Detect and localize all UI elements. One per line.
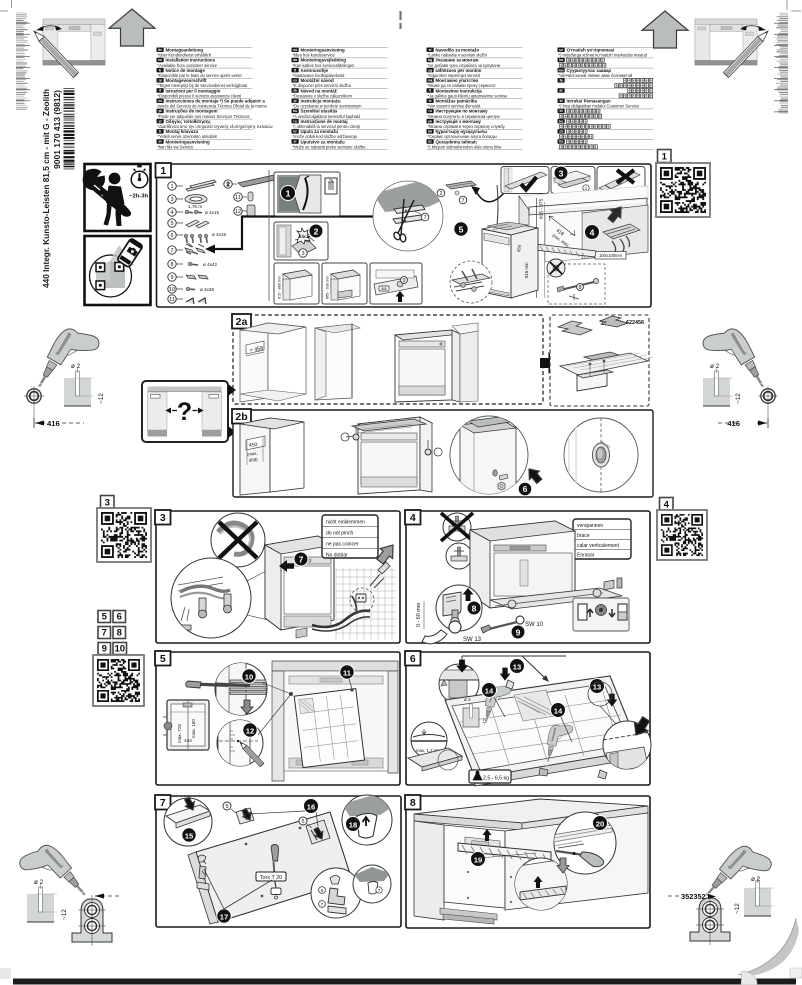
svg-text:bg: bg [428, 58, 432, 62]
svg-text:7: 7 [299, 554, 304, 564]
svg-text:7: 7 [423, 215, 426, 221]
svg-text:0 - 60 mm: 0 - 60 mm [416, 602, 422, 627]
svg-text:815 - 875: 815 - 875 [539, 198, 545, 219]
svg-text:10: 10 [169, 287, 175, 293]
svg-text:nicht einklemmen: nicht einklemmen [326, 520, 365, 526]
svg-text:1: 1 [662, 152, 668, 163]
svg-text:No doblar: No doblar [326, 553, 348, 559]
svg-text:3: 3 [559, 168, 564, 178]
svg-text:17: 17 [220, 912, 228, 921]
svg-text:11: 11 [343, 668, 352, 677]
svg-text:416: 416 [47, 419, 60, 428]
svg-text:ka: ka [559, 58, 563, 62]
svg-text:sv: sv [158, 140, 162, 144]
svg-text:888: 888 [381, 287, 387, 291]
svg-text:verspannen: verspannen [577, 523, 603, 529]
svg-text:11: 11 [169, 297, 175, 303]
svg-text:sq: sq [428, 68, 432, 72]
svg-text:440 Integr. Kunsto-Leisten 81,: 440 Integr. Kunsto-Leisten 81,5 cm - mit… [42, 89, 51, 288]
svg-text:2,5 - 6,5 kg: 2,5 - 6,5 kg [483, 776, 509, 782]
svg-text:hu: hu [293, 109, 297, 113]
svg-text:sk: sk [293, 89, 297, 93]
svg-text:5: 5 [160, 653, 166, 665]
svg-text:7: 7 [461, 198, 464, 204]
svg-text:444: 444 [184, 738, 192, 743]
svg-text:6: 6 [170, 233, 173, 239]
svg-text:8: 8 [117, 628, 122, 639]
svg-text:10: 10 [114, 644, 125, 655]
svg-text:SW 13: SW 13 [463, 637, 482, 643]
svg-text:fi: fi [294, 68, 296, 72]
svg-text:ø 2: ø 2 [34, 879, 44, 886]
svg-text:14: 14 [485, 687, 494, 696]
svg-text:2a: 2a [236, 316, 248, 328]
svg-text:~12: ~12 [61, 909, 68, 920]
svg-text:kk: kk [428, 130, 432, 134]
svg-text:en: en [158, 58, 162, 62]
svg-text:Torx T 20: Torx T 20 [260, 875, 282, 881]
svg-text:ø 2: ø 2 [464, 697, 471, 702]
svg-text:9: 9 [516, 627, 521, 637]
svg-text:6: 6 [410, 653, 416, 665]
svg-text:18: 18 [349, 821, 357, 830]
svg-text:8: 8 [472, 603, 477, 613]
svg-text:416: 416 [727, 419, 740, 428]
svg-text:9: 9 [102, 644, 107, 655]
svg-text:es: es [158, 99, 162, 103]
svg-text:*Može se nabaviti preko servis: *Može se nabaviti preko servisne službe [293, 144, 367, 149]
svg-text:ø 4x15: ø 4x15 [205, 210, 219, 215]
svg-text:4: 4 [590, 228, 595, 238]
svg-text:klick: klick [299, 234, 310, 240]
svg-text:tw: tw [559, 140, 563, 144]
svg-text:no: no [293, 48, 297, 52]
svg-text:*) Müştəri xidmətlərindən əldə: *) Müştəri xidmətlərindən əldə oluna bil… [428, 144, 503, 149]
svg-text:~2h-3h: ~2h-3h [129, 194, 148, 200]
svg-text:10: 10 [245, 672, 253, 681]
svg-text:~12: ~12 [735, 393, 742, 404]
svg-text:SW 10: SW 10 [525, 622, 544, 628]
svg-text:4: 4 [410, 512, 416, 524]
svg-text:ø 2: ø 2 [751, 876, 761, 883]
svg-text:id: id [560, 99, 563, 103]
svg-text:lv: lv [429, 99, 432, 103]
svg-text:zh: zh [559, 130, 563, 134]
svg-text:9: 9 [170, 275, 173, 281]
svg-text:7: 7 [160, 797, 166, 809]
svg-text:~12: ~12 [734, 903, 741, 914]
svg-text:*kan fås via Service: *kan fås via Service [158, 144, 195, 149]
svg-text:19: 19 [474, 856, 482, 865]
svg-text:ne pas coincer: ne pas coincer [326, 542, 359, 548]
svg-text:*үйлчилгээний төвөөс авах боло: *үйлчилгээний төвөөс авах боломжтой [559, 73, 633, 78]
svg-text:max. 150: max. 150 [191, 719, 196, 738]
svg-text:mk: mk [428, 79, 433, 83]
svg-text:ro: ro [293, 119, 296, 123]
svg-text:pl: pl [294, 99, 297, 103]
svg-text:100x100mm: 100x100mm [599, 253, 623, 258]
svg-text:*) mijozlarga xizmat ko‘rsatis: *) mijozlarga xizmat ko‘rsatish markazid… [559, 53, 648, 58]
svg-text:1,75 m: 1,75 m [188, 204, 202, 209]
svg-text:4: 4 [664, 500, 670, 511]
svg-text:2b: 2b [235, 411, 247, 423]
svg-text:7: 7 [102, 628, 107, 639]
svg-text:6: 6 [117, 612, 122, 623]
svg-text:5: 5 [102, 612, 108, 623]
svg-text:de: de [158, 48, 162, 52]
svg-text:1: 1 [286, 189, 291, 199]
svg-text:el: el [159, 119, 162, 123]
svg-text:ru: ru [428, 109, 431, 113]
svg-text:5: 5 [225, 804, 228, 810]
svg-text:calar verticalement: calar verticalement [577, 543, 620, 549]
svg-text:9001 170 413 (9812): 9001 170 413 (9812) [53, 90, 62, 169]
svg-text:?: ? [177, 398, 192, 426]
svg-text:ø 4x15: ø 4x15 [212, 232, 226, 237]
svg-text:ø 2: ø 2 [71, 363, 81, 370]
svg-text:2: 2 [226, 182, 229, 188]
svg-text:2: 2 [439, 191, 442, 197]
svg-text:fa: fa [560, 79, 563, 83]
svg-text:2: 2 [314, 226, 319, 236]
svg-text:8: 8 [170, 262, 173, 268]
svg-text:uk: uk [428, 119, 432, 123]
svg-text:12: 12 [246, 726, 254, 735]
svg-text:ø 4x42: ø 4x42 [203, 262, 217, 267]
svg-text:do not pinch: do not pinch [326, 531, 353, 537]
svg-text:4: 4 [170, 210, 173, 216]
svg-text:da: da [293, 58, 297, 62]
svg-text:sl: sl [429, 48, 432, 52]
svg-text:nl: nl [159, 79, 162, 83]
svg-text:th: th [559, 109, 562, 113]
svg-text:20: 20 [596, 820, 604, 829]
svg-text:14: 14 [554, 707, 563, 716]
svg-text:~12: ~12 [98, 393, 105, 404]
svg-text:865 - 930 mm: 865 - 930 mm [326, 276, 330, 299]
svg-text:3: 3 [301, 251, 304, 257]
svg-text:8: 8 [410, 797, 416, 809]
svg-text:1: 1 [170, 184, 173, 190]
svg-text:11: 11 [235, 195, 241, 201]
svg-text:450: 450 [248, 442, 258, 449]
svg-text:7: 7 [170, 248, 173, 254]
svg-text:3: 3 [170, 197, 173, 203]
svg-text:3: 3 [160, 512, 166, 524]
svg-text:352352: 352352 [681, 892, 706, 901]
svg-text:5: 5 [459, 224, 464, 234]
svg-text:6: 6 [523, 484, 528, 494]
svg-text:650: 650 [516, 244, 522, 252]
svg-text:brace: brace [577, 533, 590, 539]
svg-text:mn: mn [559, 68, 564, 72]
svg-text:ko: ko [559, 119, 563, 123]
svg-text:uz: uz [559, 48, 563, 52]
svg-text:8: 8 [578, 285, 581, 291]
svg-text:13: 13 [513, 663, 521, 672]
svg-text:16: 16 [307, 803, 315, 812]
svg-text:3: 3 [105, 498, 110, 509]
svg-text:12: 12 [235, 209, 241, 215]
svg-text:max. 725: max. 725 [177, 724, 182, 743]
svg-text:15: 15 [185, 831, 194, 840]
svg-text:ø 2: ø 2 [710, 363, 720, 370]
svg-text:9: 9 [402, 278, 405, 284]
svg-text:815 - 860 mm: 815 - 860 mm [278, 276, 282, 299]
svg-text:az: az [428, 140, 432, 144]
svg-text:5: 5 [301, 819, 304, 825]
svg-text:cs: cs [293, 79, 297, 83]
svg-text:ø 4x36: ø 4x36 [200, 287, 214, 292]
svg-text:*) bisa didapatkan melalui Cu: *) bisa didapatkan melalui Customer Serv… [559, 104, 640, 109]
svg-text:5: 5 [170, 221, 173, 227]
svg-text:1: 1 [160, 165, 166, 177]
svg-text:Enrasar: Enrasar [577, 553, 595, 559]
svg-text:815 min: 815 min [524, 262, 529, 278]
